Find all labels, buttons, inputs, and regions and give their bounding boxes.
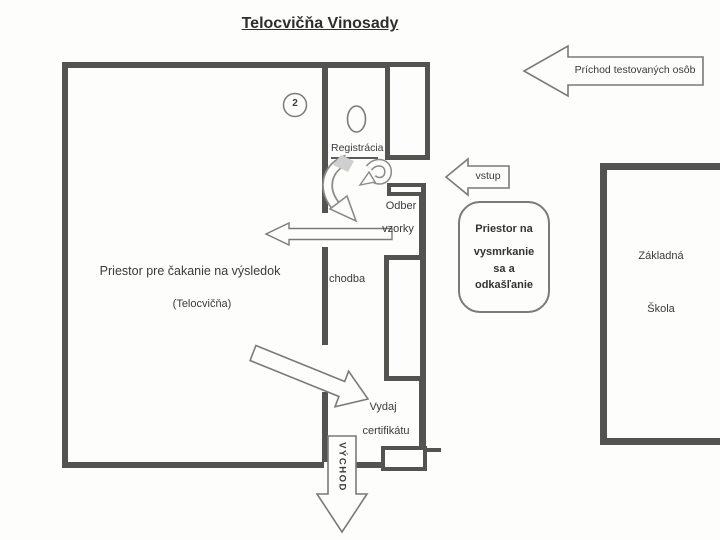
waiting-area-sublabel: (Telocvičňa): [173, 298, 232, 310]
turn-loop-arrowhead: [360, 172, 375, 185]
page-title: Telocvičňa Vinosady: [242, 15, 399, 33]
blow-room-line2: vysmrkanie: [474, 244, 535, 261]
station-number-label: 2: [292, 98, 298, 109]
certificate-label-line2: certifikátu: [362, 425, 409, 437]
blow-room-line4: odkašľanie: [475, 277, 533, 294]
waiting-area-label: Priestor pre čakanie na výsledok: [100, 264, 281, 278]
blow-cough-room-box: Priestor na vysmrkanie sa a odkašľanie: [458, 201, 550, 313]
school-label-line2: Škola: [647, 303, 675, 315]
blow-room-line1: Priestor na: [475, 221, 532, 238]
sample-label-line2: vzorky: [382, 223, 414, 235]
school-label-line1: Základná: [638, 250, 683, 262]
exit-arrow-label: VÝCHOD: [337, 442, 348, 492]
corridor-label: chodba: [329, 273, 365, 285]
registration-label: Registrácia: [331, 142, 384, 154]
arrival-arrow-label: Príchod testovaných osôb: [575, 64, 696, 76]
floor-plan-scan: Telocvičňa Vinosady Príchod testovaných …: [0, 0, 720, 540]
certificate-direction-arrow: [250, 346, 368, 407]
queue-oval: [348, 106, 366, 132]
certificate-label-line1: Vydaj: [369, 401, 396, 413]
sample-label-line1: Odber: [386, 200, 417, 212]
entry-arrow-label: vstup: [475, 170, 500, 182]
blow-room-line3: sa a: [493, 261, 514, 278]
waiting-direction-arrow: [266, 223, 392, 245]
